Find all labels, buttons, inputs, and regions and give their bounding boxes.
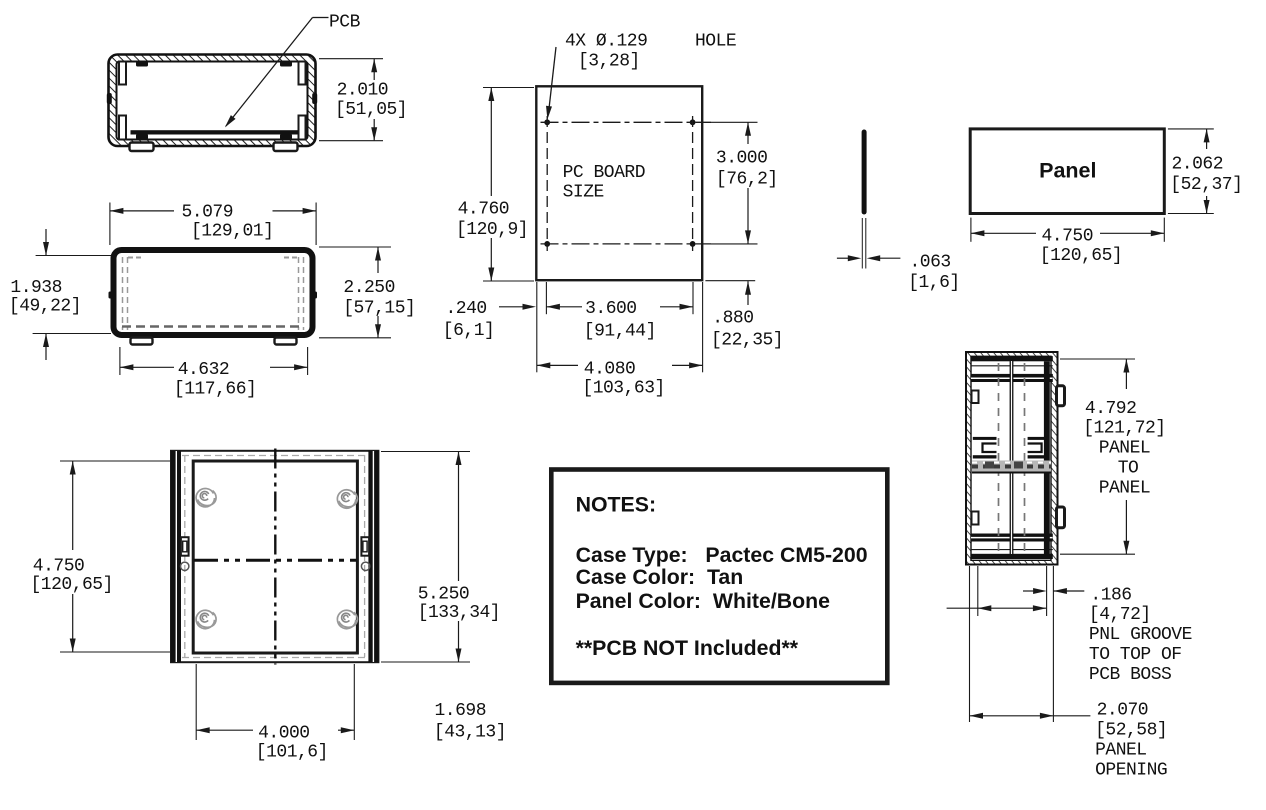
svg-text:[43,13]: [43,13] (434, 723, 506, 743)
svg-text:[120,9]: [120,9] (456, 220, 528, 240)
svg-text:4.750: 4.750 (1042, 227, 1094, 247)
svg-text:4.760: 4.760 (458, 200, 510, 220)
svg-text:2.250: 2.250 (343, 278, 395, 298)
svg-text:[4,72]: [4,72] (1089, 605, 1151, 625)
svg-text:.186: .186 (1090, 586, 1131, 606)
svg-text:PCB BOSS: PCB BOSS (1089, 665, 1171, 685)
svg-text:[129,01]: [129,01] (191, 222, 273, 242)
svg-text:PCB: PCB (329, 13, 361, 33)
svg-text:4.632: 4.632 (178, 360, 230, 380)
svg-text:PANEL: PANEL (1099, 479, 1151, 499)
svg-text:[91,44]: [91,44] (584, 322, 656, 342)
svg-text:3.000: 3.000 (716, 149, 768, 169)
svg-text:[76,2]: [76,2] (716, 170, 778, 190)
svg-text:.880: .880 (712, 309, 753, 329)
svg-text:4.792: 4.792 (1085, 399, 1137, 419)
svg-text:[101,6]: [101,6] (256, 743, 328, 763)
svg-text:[51,05]: [51,05] (335, 100, 407, 120)
svg-text:PANEL: PANEL (1099, 439, 1151, 459)
svg-text:SIZE: SIZE (563, 182, 604, 202)
svg-text:PNL GROOVE: PNL GROOVE (1089, 625, 1192, 645)
svg-text:[117,66]: [117,66] (174, 380, 256, 400)
svg-text:Panel: Panel (1039, 159, 1096, 183)
svg-text:NOTES:: NOTES: (576, 493, 656, 517)
svg-text:[103,63]: [103,63] (582, 379, 664, 399)
svg-text:PC BOARD: PC BOARD (563, 163, 645, 183)
svg-text:[133,34]: [133,34] (418, 603, 500, 623)
svg-text:4.080: 4.080 (584, 360, 636, 380)
svg-text:PANEL: PANEL (1095, 741, 1147, 761)
svg-text:Case Type: Pactec CM5-200: Case Type: Pactec CM5-200 (576, 543, 868, 567)
svg-text:[57,15]: [57,15] (343, 299, 415, 319)
svg-text:[22,35]: [22,35] (711, 331, 783, 351)
svg-text:1.938: 1.938 (10, 278, 62, 298)
svg-text:OPENING: OPENING (1095, 761, 1167, 781)
svg-text:5.079: 5.079 (182, 203, 234, 223)
svg-text:.240: .240 (446, 299, 487, 319)
svg-text:5.250: 5.250 (418, 585, 470, 605)
svg-text:4X Ø.129: 4X Ø.129 (565, 32, 647, 52)
svg-text:[52,37]: [52,37] (1170, 175, 1242, 195)
svg-text:TO TOP OF: TO TOP OF (1089, 645, 1182, 665)
svg-text:2.062: 2.062 (1172, 155, 1224, 175)
svg-text:[3,28]: [3,28] (578, 52, 640, 72)
svg-text:[121,72]: [121,72] (1083, 419, 1165, 439)
svg-text:[120,65]: [120,65] (31, 575, 113, 595)
svg-text:.063: .063 (910, 253, 951, 273)
svg-text:[120,65]: [120,65] (1040, 246, 1122, 266)
svg-text:2.070: 2.070 (1097, 701, 1149, 721)
svg-text:HOLE: HOLE (695, 32, 736, 52)
svg-text:4.000: 4.000 (258, 724, 310, 744)
svg-text:[6,1]: [6,1] (443, 321, 495, 341)
svg-text:TO: TO (1118, 459, 1139, 479)
svg-text:1.698: 1.698 (435, 701, 487, 721)
svg-text:Case Color: Tan: Case Color: Tan (576, 565, 744, 589)
svg-text:3.600: 3.600 (585, 299, 637, 319)
svg-text:Panel Color: White/Bone: Panel Color: White/Bone (576, 589, 831, 613)
svg-text:**PCB NOT Included**: **PCB NOT Included** (576, 636, 799, 660)
svg-text:4.750: 4.750 (33, 557, 85, 577)
svg-text:[49,22]: [49,22] (9, 297, 81, 317)
svg-text:[52,58]: [52,58] (1095, 721, 1167, 741)
svg-text:[1,6]: [1,6] (908, 273, 960, 293)
svg-text:2.010: 2.010 (337, 81, 389, 101)
